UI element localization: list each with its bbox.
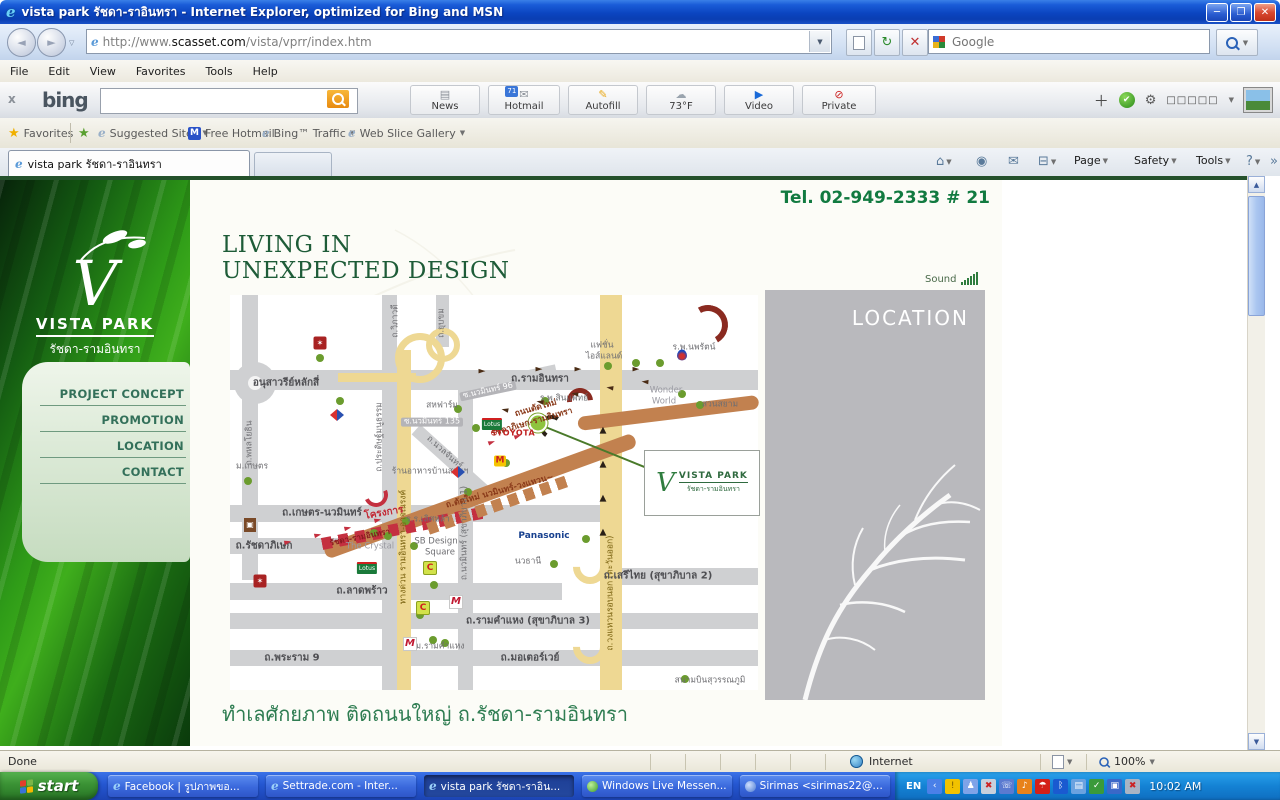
menu-tools[interactable]: Tools	[196, 65, 243, 78]
start-button[interactable]: start	[0, 772, 98, 800]
network-error-icon[interactable]: ✖	[981, 779, 996, 794]
map-direction-arrow: ▲	[600, 461, 607, 470]
bing-search-button[interactable]	[327, 90, 349, 108]
add-favorite-icon: ★	[78, 126, 90, 141]
bing-button-video[interactable]: ▶Video	[724, 85, 794, 115]
command-tools[interactable]: Tools▼	[1196, 154, 1231, 167]
dropdown-caret-icon: ▼	[1255, 158, 1260, 166]
messenger-contact-icon[interactable]: ♟	[963, 779, 978, 794]
wireless-error-icon[interactable]: ✖	[1125, 779, 1140, 794]
favbar-item-web-slice-gallery[interactable]: eWeb Slice Gallery▼	[348, 118, 465, 148]
logo-v: V	[73, 247, 118, 320]
zoom-caret-icon: ▼	[1149, 758, 1154, 766]
map-direction-arrow: ►	[641, 376, 649, 386]
hotmail-icon: ✉71	[519, 89, 528, 101]
bing-button-label: Private	[822, 101, 857, 112]
more-glyph: »	[1270, 154, 1278, 169]
menu-favorites[interactable]: Favorites	[126, 65, 196, 78]
map-label: ถ.เสรีไทย (สุขาภิบาล 2)	[604, 571, 713, 582]
vertical-scrollbar[interactable]: ▲ ▼	[1247, 176, 1265, 750]
map-label: World	[652, 397, 676, 406]
sidebar-item-project-concept[interactable]: PROJECT CONCEPT	[40, 380, 186, 406]
command-label: Tools	[1196, 154, 1223, 167]
start-label: start	[38, 777, 79, 795]
ie-icon: e	[348, 126, 356, 140]
map-label: อนุสาวรีย์หลักสี่	[253, 378, 319, 389]
map-label: Panasonic	[518, 532, 569, 542]
close-button[interactable]: ✕	[1254, 3, 1276, 22]
favorites-label: Favorites	[24, 127, 74, 140]
bing-button-73-f[interactable]: ☁73°F	[646, 85, 716, 115]
bing-button-label: Video	[745, 101, 773, 112]
mail-icon[interactable]: ✉	[1008, 154, 1019, 169]
map-poi-dot	[656, 359, 664, 367]
security-zone: Internet	[850, 755, 913, 768]
toolbar-overflow-caret-icon[interactable]: ▼	[1229, 96, 1234, 104]
google-search-box[interactable]	[928, 29, 1210, 54]
taskbar-task-settrade-com-inter[interactable]: eSettrade.com - Inter...	[266, 775, 416, 797]
google-search-input[interactable]	[950, 34, 1174, 50]
search-icon	[1226, 37, 1238, 49]
ptt-poi-icon	[677, 350, 687, 361]
location-panel: LOCATION	[765, 290, 985, 700]
command-label: Page	[1074, 154, 1101, 167]
bing-button-private[interactable]: ⊘Private	[802, 85, 876, 115]
toolbar-overflow-label[interactable]: □□□□□	[1166, 95, 1218, 106]
map-label: ถ.พระราม 9	[264, 653, 319, 664]
brand-subtitle: รัชดา-รามอินทรา	[0, 340, 190, 359]
forward-button[interactable]: ►	[37, 28, 66, 57]
map-direction-arrow: ►	[344, 524, 353, 534]
dropdown-caret-icon: ▼	[1103, 157, 1108, 165]
logo-text: VISTA PARKรัชดา-รามอินทรา	[679, 471, 748, 495]
map-label: สหฟาร์ม	[426, 401, 458, 410]
bing-button-label: Hotmail	[505, 101, 544, 112]
chat-icon[interactable]: ▤	[1071, 779, 1086, 794]
toyota-poi-icon: ⊕	[490, 430, 498, 439]
url-domain: scasset.com	[172, 35, 246, 49]
bing-button-hotmail[interactable]: ✉71Hotmail	[488, 85, 560, 115]
mcd-poi-icon: M	[494, 456, 506, 467]
taskbar-task-windows-live-messen[interactable]: Windows Live Messen...	[582, 775, 732, 797]
browser-viewport: V VISTA PARK รัชดา-รามอินทรา PROJECT CON…	[0, 176, 1280, 750]
map-direction-arrow: ►	[536, 366, 543, 375]
desktop: e vista park รัชดา-ราอินทรา - Internet E…	[0, 0, 1280, 800]
map-poi-dot	[472, 424, 480, 432]
google-logo-icon	[933, 36, 945, 48]
favbar-item-label: Suggested Sites	[110, 127, 199, 140]
sidebar-item-contact[interactable]: CONTACT	[40, 458, 186, 484]
help-glyph: ?	[1246, 154, 1253, 169]
tesco-poi-icon: Lotus	[357, 562, 377, 574]
task-label: Sirimas <sirimas22@h...	[760, 780, 885, 792]
taskbar: start eFacebook | รูปภาพขอ...eSettrade.c…	[0, 772, 1280, 800]
back-button[interactable]: ◄	[7, 28, 36, 57]
zoom-control[interactable]: 100% ▼	[1098, 755, 1155, 768]
map-label: สวนสยาม	[702, 400, 738, 409]
map-label: ม.เกษตร	[236, 462, 268, 471]
location-panel-title: LOCATION	[852, 306, 969, 330]
menu-bar: FileEditViewFavoritesToolsHelp	[0, 60, 1280, 83]
menu-view[interactable]: View	[80, 65, 126, 78]
map-direction-arrow: ►	[479, 368, 486, 377]
map-direction-arrow: ►	[314, 531, 323, 541]
bigc-poi-icon: C	[423, 561, 437, 575]
protected-mode-caret-icon: ▼	[1067, 758, 1072, 766]
map-label: ถ.ประดิษฐ์มนูธรรม	[375, 402, 384, 472]
task-ie-icon: e	[429, 779, 437, 793]
map-poi-dot	[604, 362, 612, 370]
brand-name: VISTA PARK	[36, 315, 154, 337]
sidebar-item-location[interactable]: LOCATION	[40, 432, 186, 458]
vista-park-logo: V VISTA PARK รัชดา-รามอินทรา	[0, 228, 190, 359]
internet-zone-icon	[850, 755, 863, 768]
tree-silhouette	[765, 440, 985, 700]
scroll-up-icon[interactable]: ▲	[1248, 176, 1265, 193]
map-direction-arrow: ►	[487, 438, 497, 449]
bing-button-label: News	[431, 101, 458, 112]
help-icon[interactable]: ?▼	[1246, 154, 1260, 169]
dropdown-caret-icon: ▼	[1225, 157, 1230, 165]
search-go-button[interactable]: ▼	[1216, 29, 1258, 56]
map-label: Square	[425, 548, 455, 557]
window-title: vista park รัชดา-ราอินทรา - Internet Exp…	[22, 3, 504, 22]
phone-number: Tel. 02-949-2333 # 21	[660, 188, 990, 208]
market-poi-icon: ✶	[314, 337, 327, 350]
windows-flag-icon	[20, 779, 33, 793]
location-map: อนุสาวรีย์หลักสี่ถ.รามอินทราถ.พหลโยธินม.…	[230, 295, 758, 690]
bing-button-label: 73°F	[669, 101, 692, 112]
favbar-item-bing-traffic[interactable]: eBing™ Traffic▼	[262, 118, 355, 148]
mall-poi-icon: M	[403, 637, 417, 651]
map-label: ถ.รามคำแหง (สุขาภิบาล 3)	[466, 616, 590, 627]
map-label: Wonder	[650, 386, 683, 395]
equalizer-icon	[961, 272, 978, 285]
logo-v: V	[656, 471, 675, 495]
map-label: แฟชั่น	[590, 341, 613, 350]
map-direction-arrow: ►	[501, 404, 510, 414]
hotmail-icon: M	[188, 127, 201, 140]
zoom-icon	[1099, 757, 1109, 767]
hidden-icons-chevron[interactable]: ‹	[927, 779, 942, 794]
map-label: ไอส์แลนด์	[586, 352, 623, 361]
bing-search-icon	[332, 93, 344, 105]
taskbar-task-vista-park[interactable]: evista park รัชดา-ราอิน...	[424, 775, 574, 797]
history-dropdown-icon[interactable]: ▽	[69, 39, 74, 47]
dropdown-caret-icon: ▼	[946, 158, 951, 166]
dropdown-caret-icon: ▼	[460, 129, 465, 137]
bing-button-label: Autofill	[585, 101, 620, 112]
map-label: ถ.ลาดพร้าว	[336, 586, 387, 597]
menu-file[interactable]: File	[0, 65, 38, 78]
window-titlebar: e vista park รัชดา-ราอินทรา - Internet E…	[0, 0, 1280, 24]
add-favorite-button[interactable]: ★	[78, 118, 90, 148]
command-label: Safety	[1134, 154, 1169, 167]
map-poi-dot	[336, 397, 344, 405]
task-contact-icon	[745, 781, 756, 792]
feed-icon[interactable]: ◉	[976, 154, 987, 169]
restore-button[interactable]: ❐	[1230, 3, 1252, 22]
map-label: ถ.พหลโยธิน	[245, 421, 254, 466]
toolbar-image-button[interactable]	[1244, 88, 1272, 112]
protected-mode-icon	[1052, 755, 1064, 769]
security-alert-icon[interactable]: !	[945, 779, 960, 794]
tab-ie-icon: e	[15, 157, 23, 171]
headline-line2: UNEXPECTED DESIGN	[222, 258, 510, 284]
map-direction-arrow: ▲	[600, 529, 607, 538]
map-label: ร.ร.เลิศหล้า	[406, 515, 450, 524]
map-label: ถ.รามอินทรา	[511, 374, 569, 385]
print-icon[interactable]: ⊟▼	[1038, 154, 1056, 169]
ie-logo-icon: e	[6, 5, 16, 20]
map-poi-dot	[244, 477, 252, 485]
autofill-icon: ✎	[598, 89, 607, 101]
favbar-item-label: Bing™ Traffic	[274, 127, 346, 140]
task-label: Windows Live Messen...	[602, 780, 727, 792]
url-field[interactable]: e http://www.scasset.com/vista/vprr/inde…	[86, 29, 832, 54]
mobile-sync-icon[interactable]: ☏	[999, 779, 1014, 794]
stop-button[interactable]: ✕	[902, 29, 928, 56]
favorites-button[interactable]: ★ Favorites	[8, 118, 73, 148]
safety-shield-icon[interactable]: ✔	[1119, 92, 1135, 108]
address-bar: ◄ ► ▽ e http://www.scasset.com/vista/vpr…	[0, 24, 1280, 61]
dropdown-caret-icon: ▼	[1051, 158, 1056, 166]
market-poi-icon: ✶	[254, 575, 267, 588]
language-indicator[interactable]: EN	[903, 779, 924, 794]
map-direction-arrow: ►	[575, 366, 582, 375]
task-messenger-icon	[587, 781, 598, 792]
system-tray: EN ‹!♟✖☏♪☂ᛒ▤✓▣✖ 10:02 AM	[895, 772, 1280, 800]
tab-new[interactable]	[254, 152, 332, 177]
updater-icon[interactable]: ✓	[1089, 779, 1104, 794]
private-icon: ⊘	[834, 89, 843, 101]
feed-glyph: ◉	[976, 154, 987, 169]
more-icon[interactable]: »	[1270, 154, 1278, 169]
index-poi-icon: ▣	[244, 518, 256, 532]
url-dropdown-icon[interactable]: ▼	[809, 31, 830, 52]
task-label: Settrade.com - Inter...	[283, 780, 398, 792]
zone-label: Internet	[869, 755, 913, 768]
map-label: ถ.มอเตอร์เวย์	[501, 653, 560, 664]
toolbar-close-icon[interactable]: x	[8, 92, 16, 106]
bottom-heading: ทำเลศักยภาพ ติดถนนใหญ่ ถ.รัชดา-รามอินทรา	[222, 698, 628, 730]
ie-icon: e	[262, 126, 270, 140]
print-glyph: ⊟	[1038, 154, 1049, 169]
task-ie-icon: e	[113, 779, 121, 793]
menu-edit[interactable]: Edit	[38, 65, 79, 78]
status-bar: Done Internet ▼ 100% ▼	[0, 750, 1280, 773]
map-brand-subtitle: รัชดา-รามอินทรา	[687, 484, 740, 495]
page-headline: LIVING IN UNEXPECTED DESIGN	[222, 232, 510, 284]
map-label: ถ.เกษตร-นวมินทร์	[282, 508, 362, 519]
scrollbar-thumb[interactable]	[1248, 196, 1265, 316]
favorites-star-icon: ★	[8, 126, 20, 141]
bigc-poi-icon: C	[416, 601, 430, 615]
divider	[70, 123, 71, 143]
page-ie-icon: e	[91, 35, 99, 49]
command-safety[interactable]: Safety▼	[1134, 154, 1177, 167]
map-label: ซ.นวมินทร์ 135	[401, 418, 463, 427]
map-label: SB Design	[414, 537, 457, 546]
display-icon[interactable]: ▣	[1107, 779, 1122, 794]
map-brand-name: VISTA PARK	[679, 471, 748, 483]
bing-button-news[interactable]: ▤News	[410, 85, 480, 115]
taskbar-task-facebook[interactable]: eFacebook | รูปภาพขอ...	[108, 775, 258, 797]
compatibility-view-button[interactable]	[846, 29, 872, 56]
map-label: นวธานี	[515, 557, 541, 566]
favbar-item-label: Web Slice Gallery	[360, 127, 456, 140]
mall-poi-icon: M	[449, 595, 463, 609]
clock: 10:02 AM	[1149, 780, 1201, 793]
home-glyph: ⌂	[936, 154, 944, 169]
map-poi-dot	[582, 535, 590, 543]
volume-icon[interactable]: ♪	[1017, 779, 1032, 794]
tab-vista-park[interactable]: e vista park รัชดา-ราอินทรา	[8, 150, 250, 176]
mail-glyph: ✉	[1008, 154, 1019, 169]
map-label: ถ.ยุบขม	[437, 308, 446, 338]
task-ie-icon: e	[271, 779, 279, 793]
dropdown-caret-icon: ▼	[1171, 157, 1176, 165]
url-prefix: http://www.	[103, 35, 172, 49]
headline-line1: LIVING IN	[222, 232, 510, 258]
sound-toggle[interactable]: Sound	[925, 272, 978, 285]
ie-icon: e	[98, 126, 106, 140]
map-label: ถ.วิภาวดี	[391, 304, 400, 337]
refresh-button[interactable]: ↻	[874, 29, 900, 56]
sound-label: Sound	[925, 274, 957, 285]
avira-icon[interactable]: ☂	[1035, 779, 1050, 794]
carrefour-poi-icon	[330, 409, 344, 421]
status-text: Done	[8, 755, 37, 768]
map-direction-arrow: ▲	[600, 427, 607, 436]
video-icon: ▶	[755, 89, 763, 101]
map-poi-dot	[316, 354, 324, 362]
map-direction-arrow: ►	[633, 366, 640, 375]
wrench-icon[interactable]: ⚙	[1145, 93, 1157, 108]
bluetooth-icon[interactable]: ᛒ	[1053, 779, 1068, 794]
73-f-icon: ☁	[676, 89, 687, 101]
sidebar: V VISTA PARK รัชดา-รามอินทรา PROJECT CON…	[0, 180, 190, 746]
map-poi-dot	[550, 560, 558, 568]
bing-button-autofill[interactable]: ✎Autofill	[568, 85, 638, 115]
bing-search-input[interactable]	[100, 88, 358, 114]
taskbar-task-sirimas-sirimas22-h[interactable]: Sirimas <sirimas22@h...	[740, 775, 890, 797]
mail-count-badge: 71	[505, 86, 518, 97]
compatibility-page-icon	[853, 36, 865, 50]
search-options-caret-icon[interactable]: ▼	[1243, 39, 1248, 47]
favorites-bar: ★ Favorites ★ eSuggested Sites▼MFree Hot…	[0, 118, 1280, 149]
task-label: Facebook | รูปภาพขอ...	[125, 778, 240, 795]
menu-help[interactable]: Help	[243, 65, 288, 78]
bing-logo[interactable]: bing	[42, 88, 88, 112]
map-direction-arrow: ►	[606, 382, 614, 392]
protected-mode-button[interactable]: ▼	[1052, 755, 1072, 769]
zoom-level: 100%	[1114, 755, 1145, 768]
home-icon[interactable]: ⌂▼	[936, 154, 952, 169]
map-direction-arrow: ▲	[600, 495, 607, 504]
toolbar-add-icon[interactable]: ＋	[1094, 90, 1109, 111]
map-vista-park-logo-box: VVISTA PARKรัชดา-รามอินทรา	[644, 450, 760, 516]
sidebar-item-promotion[interactable]: PROMOTION	[40, 406, 186, 432]
task-label: vista park รัชดา-ราอิน...	[441, 778, 561, 795]
url-path: /vista/vprr/index.htm	[246, 35, 372, 49]
map-label: สนามบินสุวรรณภูมิ	[675, 676, 746, 685]
tab-label: vista park รัชดา-ราอินทรา	[28, 155, 162, 173]
bing-toolbar: x bing ▤News✉71Hotmail✎Autofill☁73°F▶Vid…	[0, 82, 1280, 119]
command-page[interactable]: Page▼	[1074, 154, 1108, 167]
map-poi-dot	[430, 581, 438, 589]
map-label: ม.รามคำแหง	[416, 642, 465, 651]
minimize-button[interactable]: ─	[1206, 3, 1228, 22]
map-label: ถ.วงแหวนรอบนอก (ตะวันออก)	[606, 536, 615, 651]
scroll-down-icon[interactable]: ▼	[1248, 733, 1265, 750]
news-icon: ▤	[440, 89, 450, 101]
